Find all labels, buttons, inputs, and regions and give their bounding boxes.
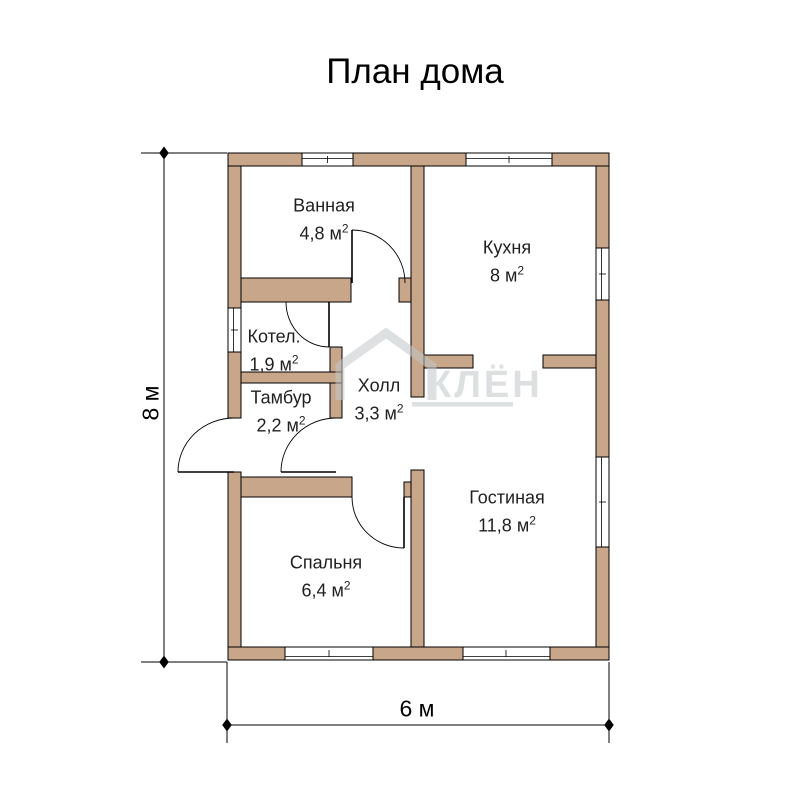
wall-right-middle xyxy=(596,300,609,457)
dim-marker xyxy=(159,656,169,669)
room-area: 4,8м2 xyxy=(293,218,355,246)
watermark-text: КЛЁН xyxy=(428,363,543,406)
wall-top-right xyxy=(552,153,609,166)
room-area: 3,3м2 xyxy=(354,398,403,426)
wall-kitchen-stub-right xyxy=(543,355,596,368)
dim-marker xyxy=(222,719,232,732)
floor-plan-page: КЛЁН План дома Ванная 4,8м2 Кухня 8м2 Ко… xyxy=(0,0,800,800)
livingroom-right-window xyxy=(596,457,609,547)
livingroom-bottom-window xyxy=(463,647,550,660)
wall-left-middle xyxy=(228,352,241,418)
dim-width-label: 6 м xyxy=(400,696,435,723)
room-name: Котел. xyxy=(247,326,300,349)
room-name: Тамбур xyxy=(250,387,311,410)
bedroom-door xyxy=(352,497,404,548)
room-area: 11,8м2 xyxy=(469,510,545,538)
room-label-bathroom: Ванная 4,8м2 xyxy=(293,195,355,246)
room-name: Кухня xyxy=(483,237,531,260)
room-area: 2,2м2 xyxy=(250,410,311,438)
page-title: План дома xyxy=(326,52,504,92)
room-label-hall: Холл 3,3м2 xyxy=(354,375,403,426)
wall-bottom-middle xyxy=(373,647,463,660)
room-label-livingroom: Гостиная 11,8м2 xyxy=(469,487,545,538)
wall-bottom-right xyxy=(550,647,609,660)
wall-bedroom-door-hook xyxy=(404,482,411,497)
wall-left-lower xyxy=(228,472,241,647)
room-name: Ванная xyxy=(293,195,355,218)
wall-bedroom-livingroom xyxy=(411,470,424,647)
bathroom-door xyxy=(352,230,405,283)
dim-marker xyxy=(159,147,169,160)
wall-top-middle xyxy=(353,153,466,166)
kitchen-top-window xyxy=(466,153,552,166)
room-area: 1,9м2 xyxy=(247,349,300,377)
room-label-bedroom: Спальня 6,4м2 xyxy=(290,552,362,603)
dim-height-label: 8 м xyxy=(138,386,165,421)
room-area: 8м2 xyxy=(483,260,531,288)
room-name: Гостиная xyxy=(469,487,545,510)
bathroom-window xyxy=(302,153,353,166)
room-label-boiler: Котел. 1,9м2 xyxy=(247,326,300,377)
wall-bottom-left xyxy=(228,647,285,660)
bedroom-window xyxy=(285,647,373,660)
kitchen-right-window xyxy=(596,248,609,300)
boiler-window xyxy=(228,308,241,352)
entry-door xyxy=(178,418,234,472)
wall-top-left xyxy=(228,153,302,166)
room-name: Холл xyxy=(354,375,403,398)
wall-right-upper xyxy=(596,166,609,248)
wall-bathroom-bottom xyxy=(241,278,351,302)
wall-bedroom-top xyxy=(241,477,352,497)
dim-marker xyxy=(604,719,614,732)
wall-left-upper xyxy=(228,166,241,308)
room-area: 6,4м2 xyxy=(290,575,362,603)
wall-right-lower xyxy=(596,547,609,647)
room-name: Спальня xyxy=(290,552,362,575)
room-label-vestibule: Тамбур 2,2м2 xyxy=(250,387,311,438)
room-label-kitchen: Кухня 8м2 xyxy=(483,237,531,288)
